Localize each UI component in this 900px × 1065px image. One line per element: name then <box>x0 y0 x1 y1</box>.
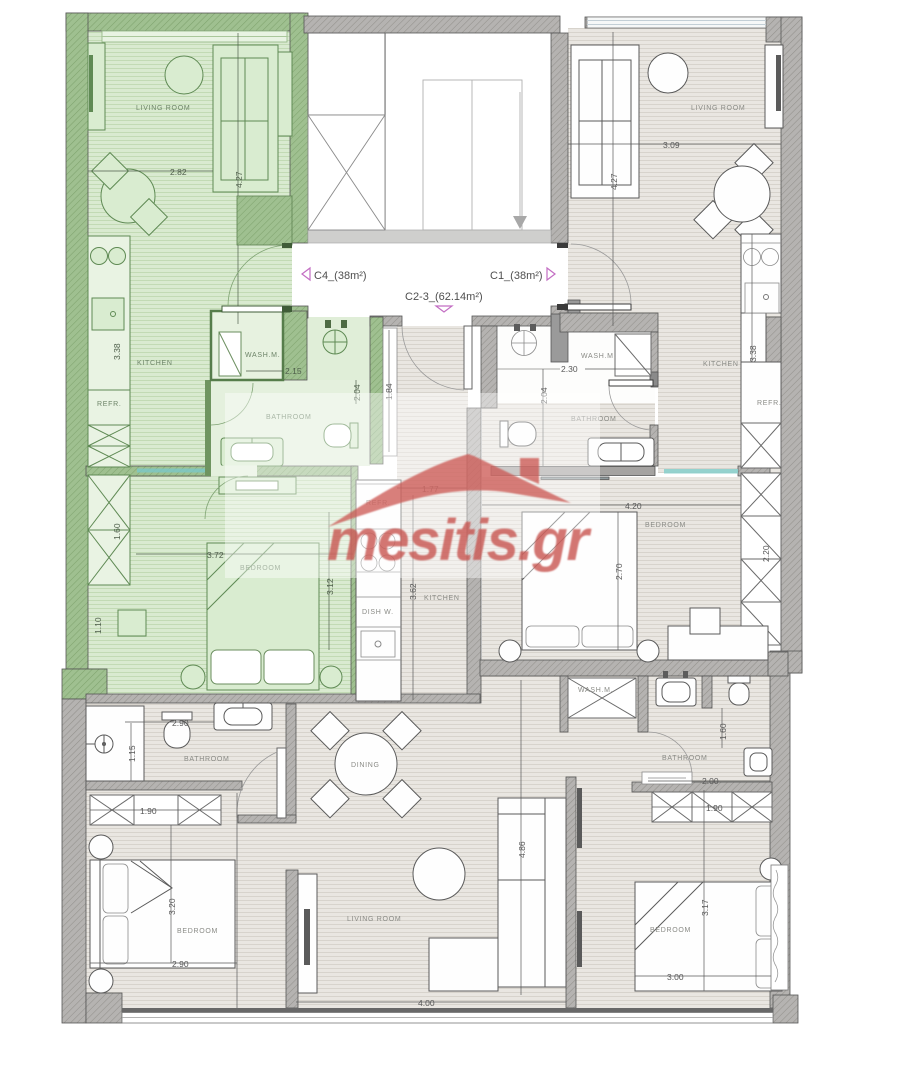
svg-text:2.90: 2.90 <box>172 718 189 728</box>
svg-text:4.86: 4.86 <box>517 841 527 858</box>
svg-text:3.12: 3.12 <box>325 578 335 595</box>
svg-text:C1_(38m²): C1_(38m²) <box>490 270 543 282</box>
svg-text:2.70: 2.70 <box>614 563 624 580</box>
svg-text:DISH W.: DISH W. <box>362 609 394 616</box>
svg-text:3.00: 3.00 <box>667 972 684 982</box>
svg-text:C2-3_(62.14m²): C2-3_(62.14m²) <box>405 291 483 303</box>
svg-text:3.38: 3.38 <box>112 343 122 360</box>
svg-text:mesitis.gr: mesitis.gr <box>327 508 592 573</box>
svg-text:2.90: 2.90 <box>172 959 189 969</box>
svg-text:BEDROOM: BEDROOM <box>177 928 218 935</box>
svg-text:2.00: 2.00 <box>702 776 719 786</box>
svg-text:BEDROOM: BEDROOM <box>645 522 686 529</box>
svg-text:WASH.M.: WASH.M. <box>578 687 613 694</box>
svg-text:C4_(38m²): C4_(38m²) <box>314 270 367 282</box>
svg-text:2.15: 2.15 <box>285 366 302 376</box>
svg-text:KITCHEN: KITCHEN <box>137 360 173 367</box>
svg-text:2.30: 2.30 <box>561 364 578 374</box>
svg-text:4.27: 4.27 <box>609 173 619 190</box>
svg-text:2.20: 2.20 <box>761 545 771 562</box>
svg-text:3.20: 3.20 <box>167 898 177 915</box>
svg-text:4.20: 4.20 <box>625 501 642 511</box>
svg-text:LIVING ROOM: LIVING ROOM <box>136 105 190 112</box>
svg-text:LIVING ROOM: LIVING ROOM <box>347 916 401 923</box>
svg-text:1.90: 1.90 <box>140 806 157 816</box>
svg-text:KITCHEN: KITCHEN <box>703 361 739 368</box>
svg-text:DINING: DINING <box>351 762 380 769</box>
svg-text:1.90: 1.90 <box>706 803 723 813</box>
svg-text:1.60: 1.60 <box>718 723 728 740</box>
svg-text:WASH.M.: WASH.M. <box>581 353 616 360</box>
svg-text:WASH.M.: WASH.M. <box>245 352 280 359</box>
svg-text:1.10: 1.10 <box>93 617 103 634</box>
svg-text:BATHROOM: BATHROOM <box>662 755 708 762</box>
svg-text:2.82: 2.82 <box>170 167 187 177</box>
svg-text:KITCHEN: KITCHEN <box>424 595 460 602</box>
svg-text:3.72: 3.72 <box>207 550 224 560</box>
svg-text:REFR.: REFR. <box>97 401 122 408</box>
svg-text:4.27: 4.27 <box>234 171 244 188</box>
svg-text:4.00: 4.00 <box>418 998 435 1008</box>
svg-text:BEDROOM: BEDROOM <box>650 927 691 934</box>
svg-text:3.17: 3.17 <box>700 899 710 916</box>
svg-text:3.38: 3.38 <box>748 345 758 362</box>
svg-text:LIVING ROOM: LIVING ROOM <box>691 105 745 112</box>
svg-text:1.60: 1.60 <box>112 523 122 540</box>
svg-text:3.62: 3.62 <box>408 583 418 600</box>
svg-text:REFR.: REFR. <box>757 400 782 407</box>
svg-text:BATHROOM: BATHROOM <box>184 756 230 763</box>
svg-text:3.09: 3.09 <box>663 140 680 150</box>
svg-text:1.15: 1.15 <box>127 745 137 762</box>
